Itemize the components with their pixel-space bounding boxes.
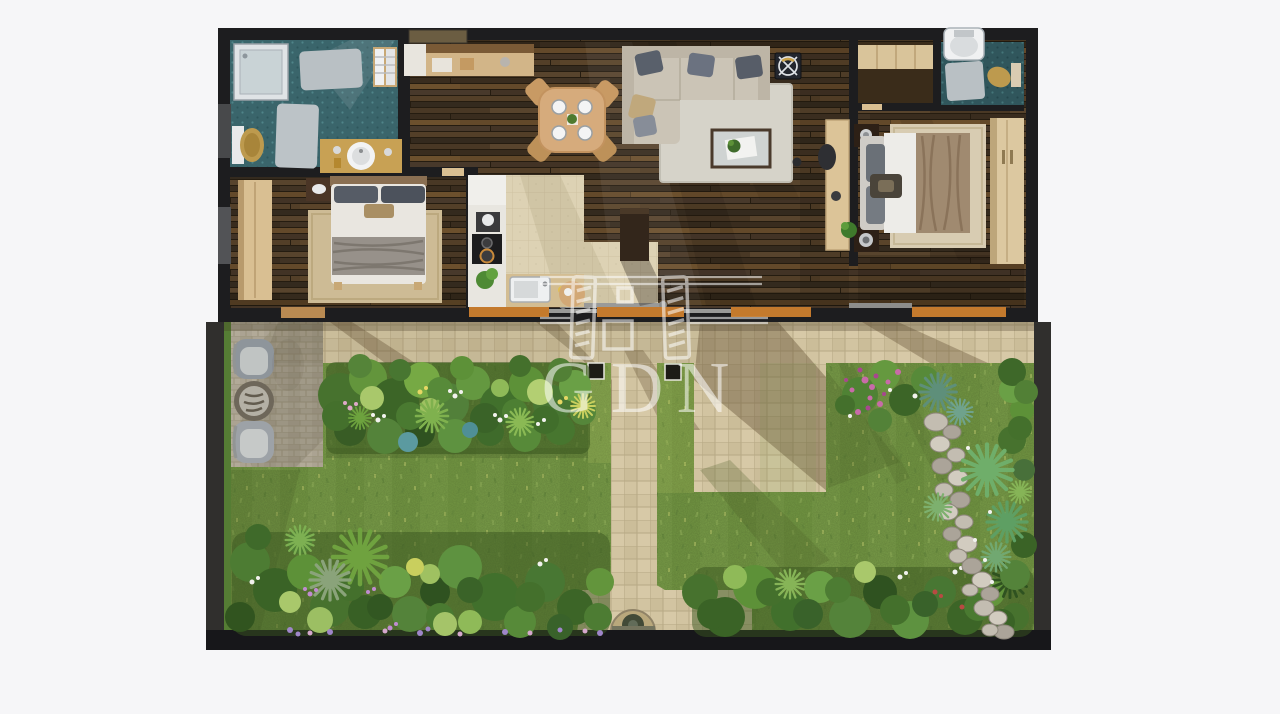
svg-text:G: G bbox=[542, 347, 595, 428]
svg-text:N: N bbox=[677, 347, 730, 428]
svg-text:D: D bbox=[611, 347, 664, 428]
